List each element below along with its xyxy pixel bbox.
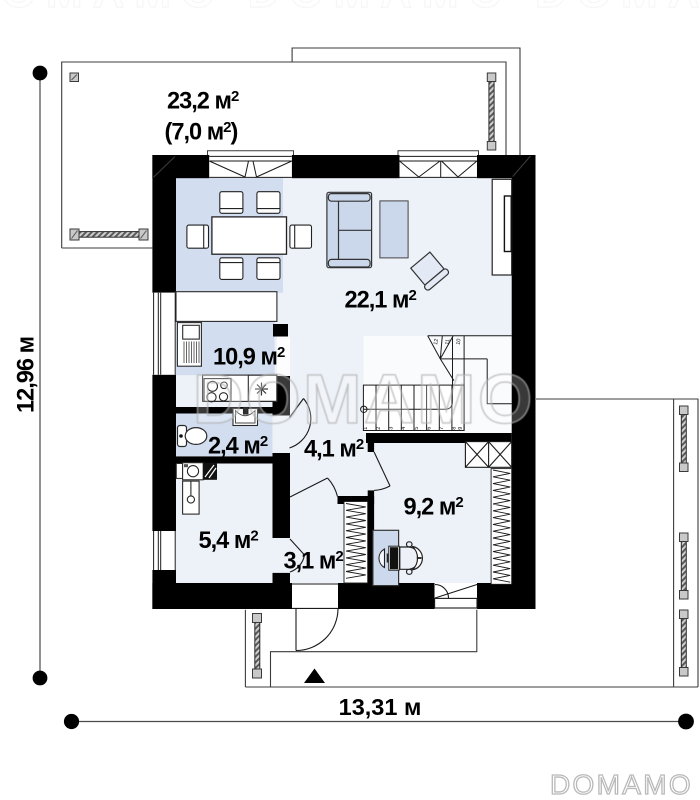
svg-text:23,2 м2: 23,2 м2 — [167, 88, 239, 115]
svg-text:13,31 м: 13,31 м — [339, 694, 422, 720]
svg-text:DOMAMO: DOMAMO — [550, 769, 693, 800]
svg-text:DOMAMO DOMAMO DOMAMO: DOMAMO DOMAMO DOMAMO — [0, 0, 700, 17]
svg-text:DOMAMO: DOMAMO — [193, 360, 535, 438]
svg-text:22,1 м2: 22,1 м2 — [345, 287, 417, 314]
svg-text:11: 11 — [445, 339, 452, 346]
svg-text:10: 10 — [456, 338, 463, 345]
svg-text:9,2 м2: 9,2 м2 — [404, 494, 464, 521]
svg-text:5,4 м2: 5,4 м2 — [199, 528, 259, 555]
svg-text:12,96 м: 12,96 м — [14, 337, 40, 413]
svg-text:3,1 м2: 3,1 м2 — [284, 548, 344, 575]
svg-text:12: 12 — [433, 338, 440, 345]
svg-text:4,1 м2: 4,1 м2 — [304, 436, 364, 463]
